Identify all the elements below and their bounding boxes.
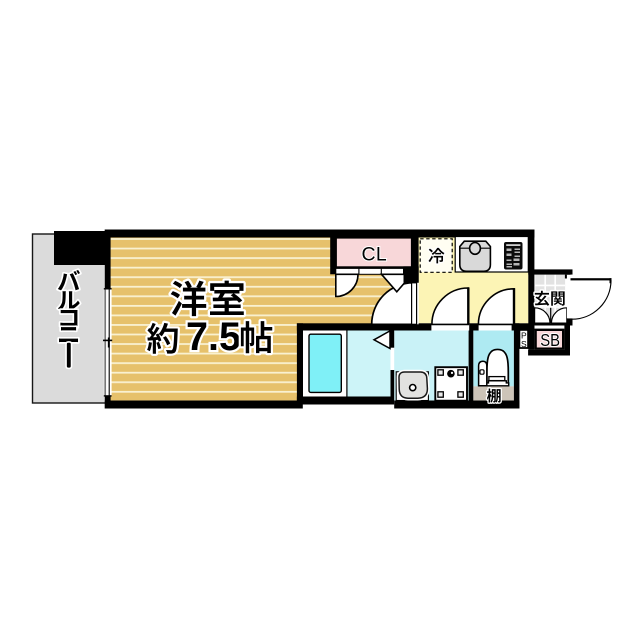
- svg-text:CL: CL: [362, 243, 388, 265]
- svg-text:S: S: [521, 339, 527, 349]
- svg-text:SB: SB: [540, 330, 560, 350]
- svg-text:7.5: 7.5: [186, 315, 241, 359]
